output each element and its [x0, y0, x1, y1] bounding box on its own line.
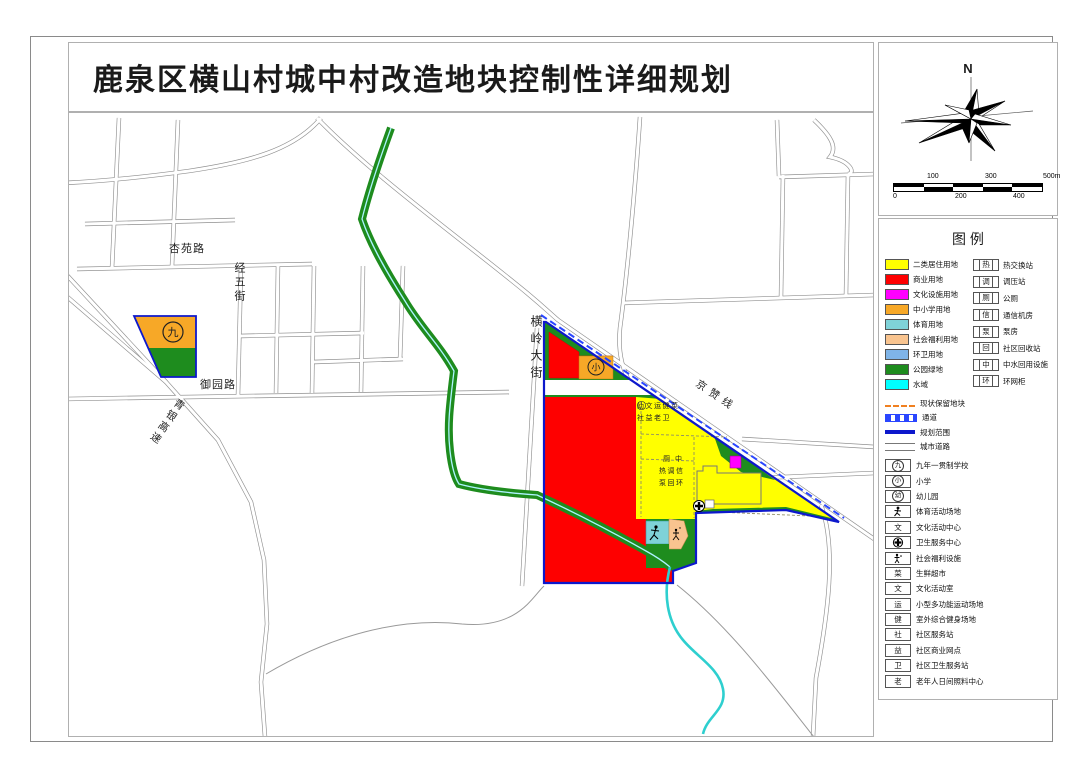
legend-label: 社区服务站 — [916, 629, 954, 640]
facility-symbol-cross — [885, 536, 911, 549]
legend-label: 热交换站 — [1003, 260, 1033, 271]
legend-row: 公园绿地 — [885, 362, 973, 377]
facility-symbol-老: 老 — [885, 675, 911, 688]
facility-symbol-社: 社 — [885, 628, 911, 641]
legend-label: 环卫用地 — [913, 349, 943, 360]
culture-parcel — [730, 456, 741, 468]
scale-label: 500m — [1043, 173, 1061, 180]
svg-text:厕 中: 厕 中 — [663, 454, 683, 463]
landuse-swatch — [885, 349, 909, 360]
facility-symbol-菜: 菜 — [885, 567, 911, 580]
legend-label: 小学 — [916, 476, 931, 487]
road-label-yuyuan: 御园路 — [200, 376, 236, 392]
legend-row: 老老年人日间照料中心 — [885, 673, 1052, 688]
legend-label: 调压站 — [1003, 276, 1026, 287]
legend-utilities-column: 热热交换站调调压站厕公厕信通信机房泵泵房回社区回收站中中水回用设施环环网柜 — [973, 257, 1052, 392]
legend-row: 调调压站 — [973, 274, 1052, 291]
facility-symbol-幼: 幼 — [885, 490, 911, 503]
title-block: 鹿泉区横山村城中村改造地块控制性详细规划 — [68, 42, 874, 112]
legend-row: 幼幼儿园 — [885, 489, 1052, 504]
legend-row: 中中水回用设施 — [973, 357, 1052, 374]
legend-label: 商业用地 — [913, 274, 943, 285]
legend-label: 九年一贯制学校 — [916, 460, 969, 471]
legend-label: 社会福利设施 — [916, 553, 961, 564]
line-symbol-solid-blue — [885, 430, 915, 434]
legend-row: 卫生服务中心 — [885, 535, 1052, 550]
legend-label: 卫生服务中心 — [916, 537, 961, 548]
legend-label: 生鲜超市 — [916, 568, 946, 579]
line-symbol-dash-blue — [885, 414, 917, 422]
page-title: 鹿泉区横山村城中村改造地块控制性详细规划 — [69, 55, 733, 99]
legend-row: 热热交换站 — [973, 257, 1052, 274]
legend-row: 菜生鲜超市 — [885, 566, 1052, 581]
legend-label: 规划范围 — [920, 427, 950, 438]
legend-panel: 图 例 二类居住用地商业用地文化设施用地中小学用地体育用地社会福利用地环卫用地公… — [878, 218, 1058, 700]
legend-row: 体育用地 — [885, 317, 973, 332]
facility-symbol-figure — [885, 505, 911, 518]
legend-label: 社区商业网点 — [916, 645, 961, 656]
scale-bar-band — [893, 183, 1043, 192]
landuse-swatch — [885, 334, 909, 345]
facility-symbol-健: 健 — [885, 613, 911, 626]
utility-symbol: 中 — [973, 359, 999, 371]
legend-row: 九九年一贯制学校 — [885, 458, 1052, 473]
svg-text:小: 小 — [591, 363, 600, 373]
legend-label: 幼儿园 — [916, 491, 939, 502]
legend-label: 水域 — [913, 379, 928, 390]
legend-row: 小小学 — [885, 473, 1052, 488]
landuse-swatch — [885, 379, 909, 390]
legend-row: 现状保留地块 — [885, 396, 1052, 411]
stream — [667, 567, 724, 734]
legend-landuse-column: 二类居住用地商业用地文化设施用地中小学用地体育用地社会福利用地环卫用地公园绿地水… — [885, 257, 973, 392]
scale-label: 400 — [1013, 193, 1025, 200]
scale-label: 300 — [985, 173, 997, 180]
sports-parcel — [646, 521, 669, 544]
legend-label: 中水回用设施 — [1003, 359, 1048, 370]
legend-row: 水域 — [885, 377, 973, 392]
legend-row: 益社区商业网点 — [885, 643, 1052, 658]
svg-text:九: 九 — [168, 326, 179, 339]
svg-text:社益老卫: 社益老卫 — [637, 413, 671, 422]
svg-text:幼文运健菜: 幼文运健菜 — [637, 401, 680, 410]
landuse-swatch — [885, 364, 909, 375]
utility-symbol: 热 — [973, 259, 999, 271]
legend-row: 回社区回收站 — [973, 340, 1052, 357]
plan-sheet: 鹿泉区横山村城中村改造地块控制性详细规划 — [0, 0, 1080, 764]
legend-row: 泵泵房 — [973, 323, 1052, 340]
utility-symbol: 调 — [973, 276, 999, 288]
legend-label: 现状保留地块 — [920, 398, 965, 409]
legend-row: 中小学用地 — [885, 302, 973, 317]
legend-label: 小型多功能运动场地 — [916, 599, 984, 610]
legend-row: 环卫用地 — [885, 347, 973, 362]
utility-symbol: 回 — [973, 342, 999, 354]
facility-symbol-运: 运 — [885, 598, 911, 611]
legend-label: 通信机房 — [1003, 310, 1033, 321]
utility-symbol: 厕 — [973, 292, 999, 304]
legend-facilities-section: 九九年一贯制学校小小学幼幼儿园体育活动场地文文化活动中心卫生服务中心社会福利设施… — [879, 458, 1057, 689]
legend-label: 泵房 — [1003, 326, 1018, 337]
utility-symbol: 环 — [973, 375, 999, 387]
legend-label: 文化活动中心 — [916, 522, 961, 533]
legend-lines-section: 现状保留地块通道规划范围城市道路 — [879, 396, 1057, 454]
landuse-swatch — [885, 259, 909, 270]
plan-map: 九 小 — [68, 112, 874, 737]
legend-row: 社会福利用地 — [885, 332, 973, 347]
facility-symbol-person — [885, 552, 911, 565]
facility-symbol-文: 文 — [885, 582, 911, 595]
legend-row: 环环网柜 — [973, 373, 1052, 390]
road-fills — [69, 117, 873, 736]
legend-label: 社会福利用地 — [913, 334, 958, 345]
legend-label: 室外综合健身场地 — [916, 614, 976, 625]
legend-label: 公厕 — [1003, 293, 1018, 304]
line-symbol-dash-orange — [885, 405, 915, 407]
legend-row: 规划范围 — [885, 425, 1052, 440]
legend-row: 文文化活动室 — [885, 581, 1052, 596]
legend-label: 老年人日间照料中心 — [916, 676, 984, 687]
utility-symbol: 信 — [973, 309, 999, 321]
road-minor — [266, 585, 814, 736]
scale-label: 100 — [927, 173, 939, 180]
road-casings — [69, 117, 873, 736]
legend-label: 城市道路 — [920, 441, 950, 452]
compass-rose — [879, 73, 1057, 165]
legend-row: 体育活动场地 — [885, 504, 1052, 519]
legend-label: 社区回收站 — [1003, 343, 1041, 354]
line-symbol-road — [885, 443, 915, 451]
legend-title: 图 例 — [879, 229, 1057, 249]
legend-row: 二类居住用地 — [885, 257, 973, 272]
utility-symbol: 泵 — [973, 326, 999, 338]
legend-label: 二类居住用地 — [913, 259, 958, 270]
map-canvas: 九 小 — [69, 113, 873, 736]
road-label-hengling: 横岭大街 — [528, 315, 545, 383]
legend-row: 卫社区卫生服务站 — [885, 658, 1052, 673]
facility-symbol-九: 九 — [885, 459, 911, 472]
legend-row: 厕公厕 — [973, 290, 1052, 307]
scale-bar: 100300500m0200400 — [893, 169, 1043, 209]
legend-row: 运小型多功能运动场地 — [885, 597, 1052, 612]
legend-row: 健室外综合健身场地 — [885, 612, 1052, 627]
landuse-swatch — [885, 319, 909, 330]
yuyuan-road-strip — [544, 380, 655, 395]
legend-row: 文化设施用地 — [885, 287, 973, 302]
compass-panel: N — [878, 42, 1058, 216]
facility-symbol-文: 文 — [885, 521, 911, 534]
school-parcel-orange — [134, 316, 196, 348]
legend-row: 商业用地 — [885, 272, 973, 287]
landuse-swatch — [885, 289, 909, 300]
facility-symbol-小: 小 — [885, 475, 911, 488]
legend-label: 环网柜 — [1003, 376, 1026, 387]
scale-label: 200 — [955, 193, 967, 200]
svg-text:热调信: 热调信 — [659, 466, 685, 475]
legend-label: 公园绿地 — [913, 364, 943, 375]
legend-label: 体育活动场地 — [916, 506, 961, 517]
legend-label: 体育用地 — [913, 319, 943, 330]
road-label-jingwu: 经五街 — [231, 262, 247, 304]
legend-label: 社区卫生服务站 — [916, 660, 969, 671]
legend-label: 文化设施用地 — [913, 289, 958, 300]
legend-label: 通道 — [922, 412, 937, 423]
landuse-swatch — [885, 304, 909, 315]
facility-symbol-益: 益 — [885, 644, 911, 657]
legend-row: 城市道路 — [885, 440, 1052, 455]
svg-text:泵回环: 泵回环 — [659, 479, 685, 487]
legend-row: 社社区服务站 — [885, 627, 1052, 642]
landuse-swatch — [885, 274, 909, 285]
legend-row: 通道 — [885, 411, 1052, 426]
legend-label: 中小学用地 — [913, 304, 951, 315]
facility-symbol-卫: 卫 — [885, 659, 911, 672]
scale-label: 0 — [893, 193, 897, 200]
road-label-xingyuan: 杏苑路 — [169, 240, 205, 256]
legend-row: 信通信机房 — [973, 307, 1052, 324]
legend-row: 文文化活动中心 — [885, 520, 1052, 535]
legend-row: 社会福利设施 — [885, 550, 1052, 565]
legend-label: 文化活动室 — [916, 583, 954, 594]
